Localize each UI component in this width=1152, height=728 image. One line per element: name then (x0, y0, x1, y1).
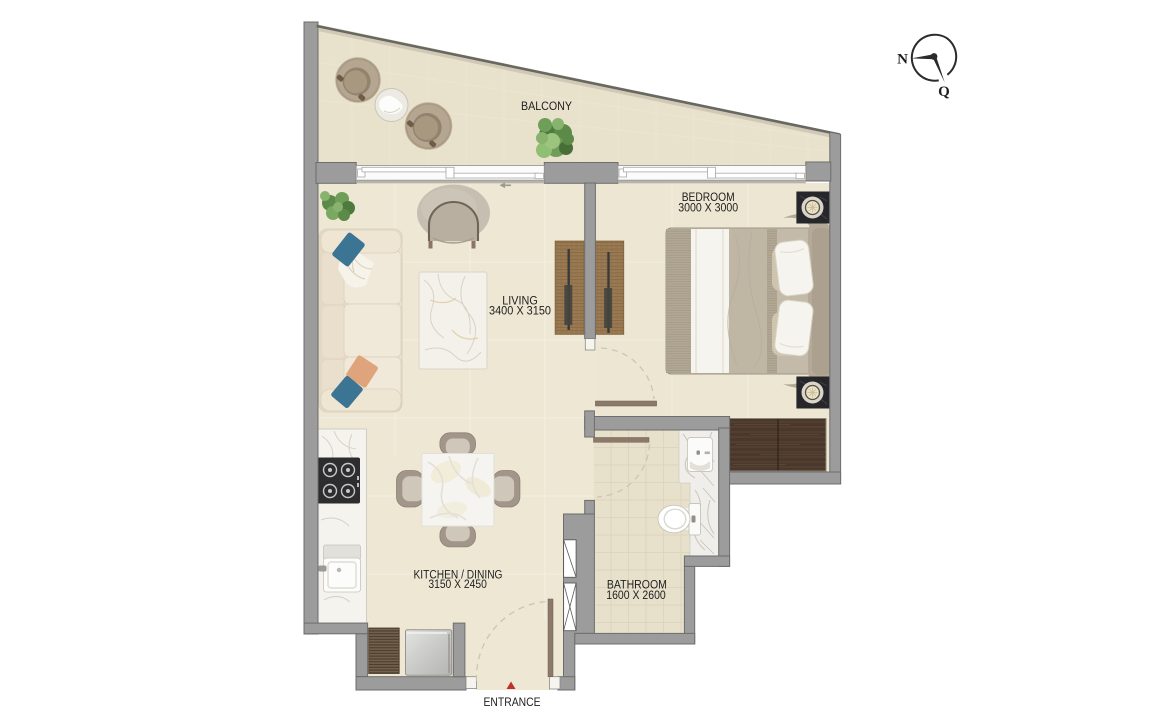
svg-text:3000 X 3000: 3000 X 3000 (678, 202, 738, 214)
svg-text:3150 X 2450: 3150 X 2450 (428, 579, 487, 591)
svg-text:ENTRANCE: ENTRANCE (484, 695, 541, 709)
svg-text:Q: Q (938, 84, 950, 100)
svg-text:N: N (897, 52, 908, 68)
svg-text:1600 X 2600: 1600 X 2600 (606, 590, 666, 602)
svg-text:3400 X 3150: 3400 X 3150 (489, 306, 551, 318)
svg-text:BALCONY: BALCONY (521, 101, 572, 113)
